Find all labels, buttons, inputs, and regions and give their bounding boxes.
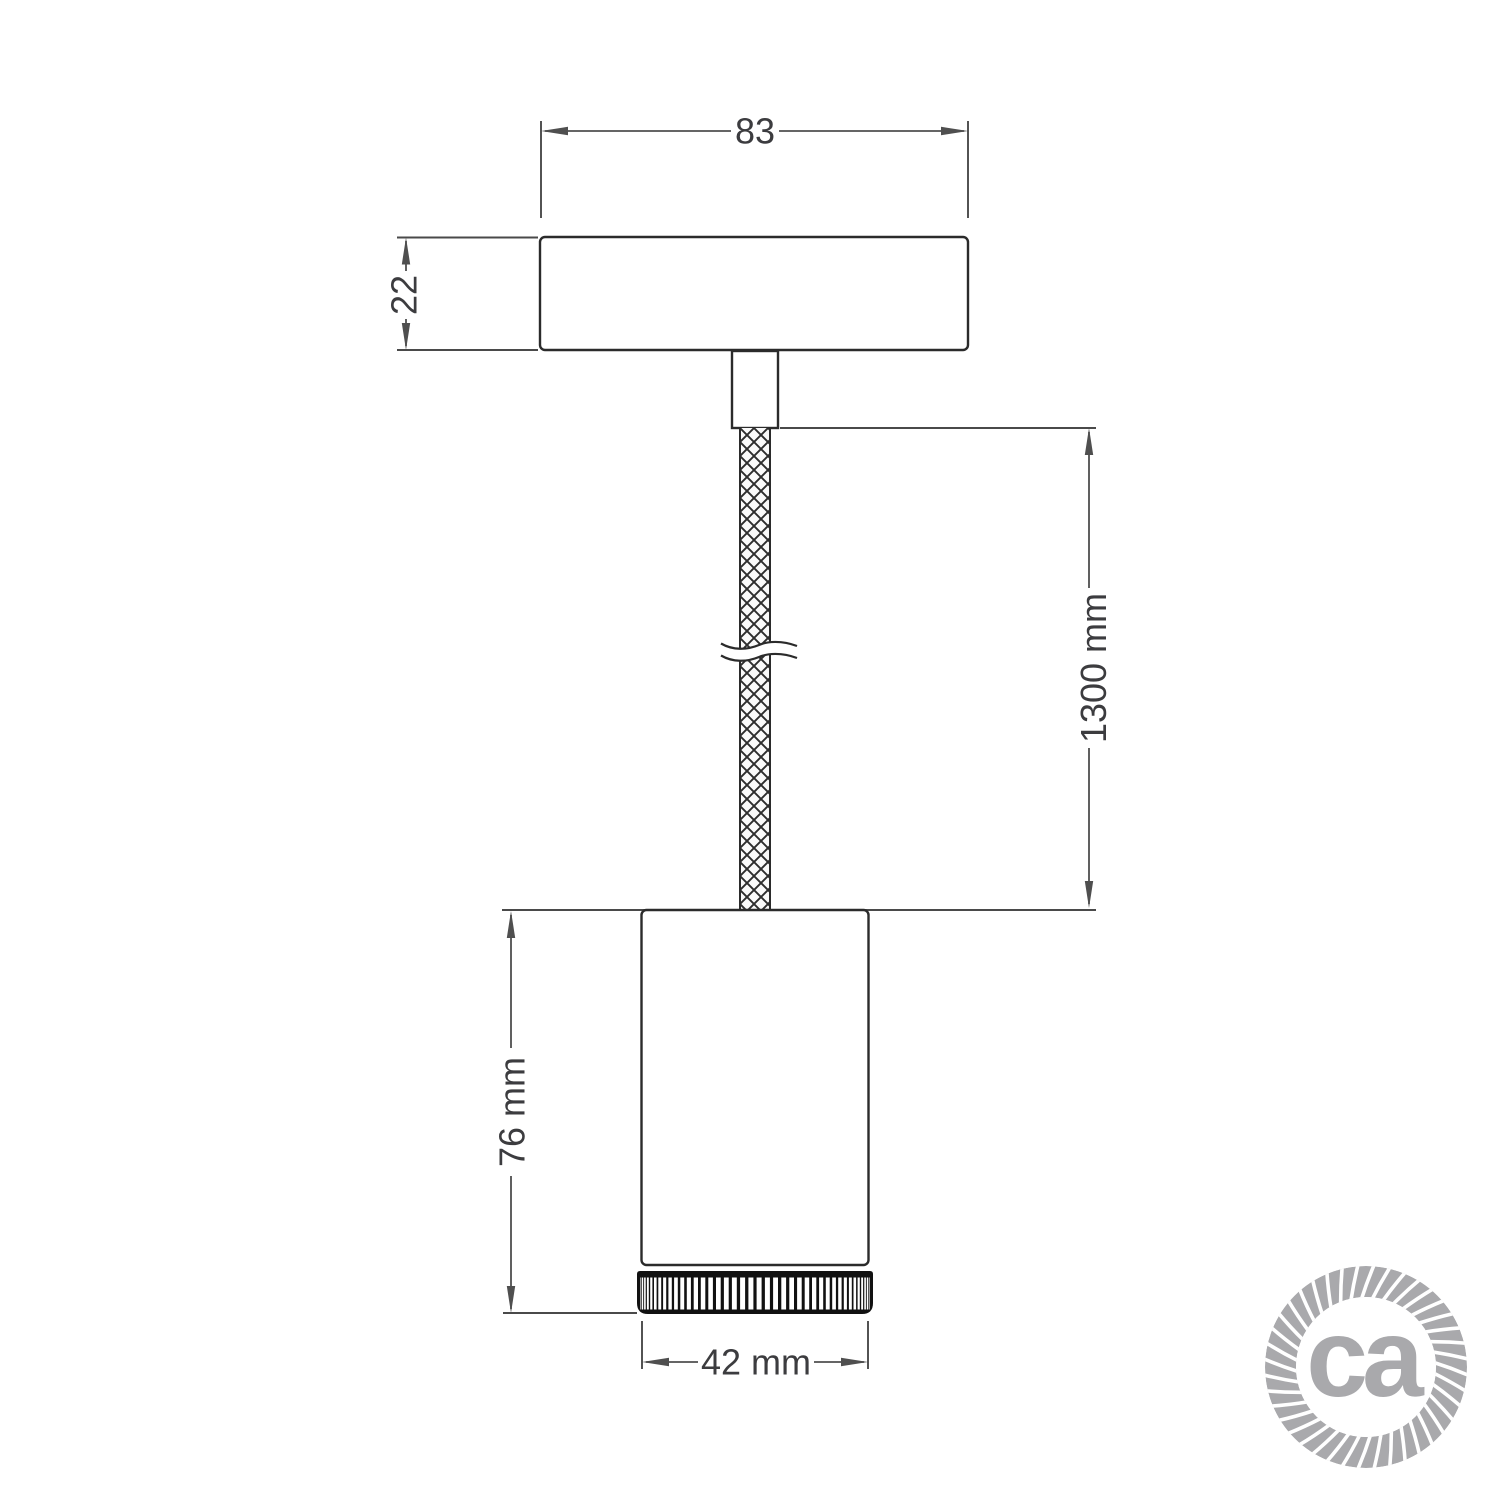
svg-text:22: 22 xyxy=(384,275,425,315)
svg-text:76 mm: 76 mm xyxy=(492,1057,533,1167)
svg-text:42 mm: 42 mm xyxy=(701,1342,811,1383)
svg-text:1300 mm: 1300 mm xyxy=(1073,593,1114,743)
svg-text:ca: ca xyxy=(1306,1296,1425,1420)
svg-text:83: 83 xyxy=(735,111,775,152)
